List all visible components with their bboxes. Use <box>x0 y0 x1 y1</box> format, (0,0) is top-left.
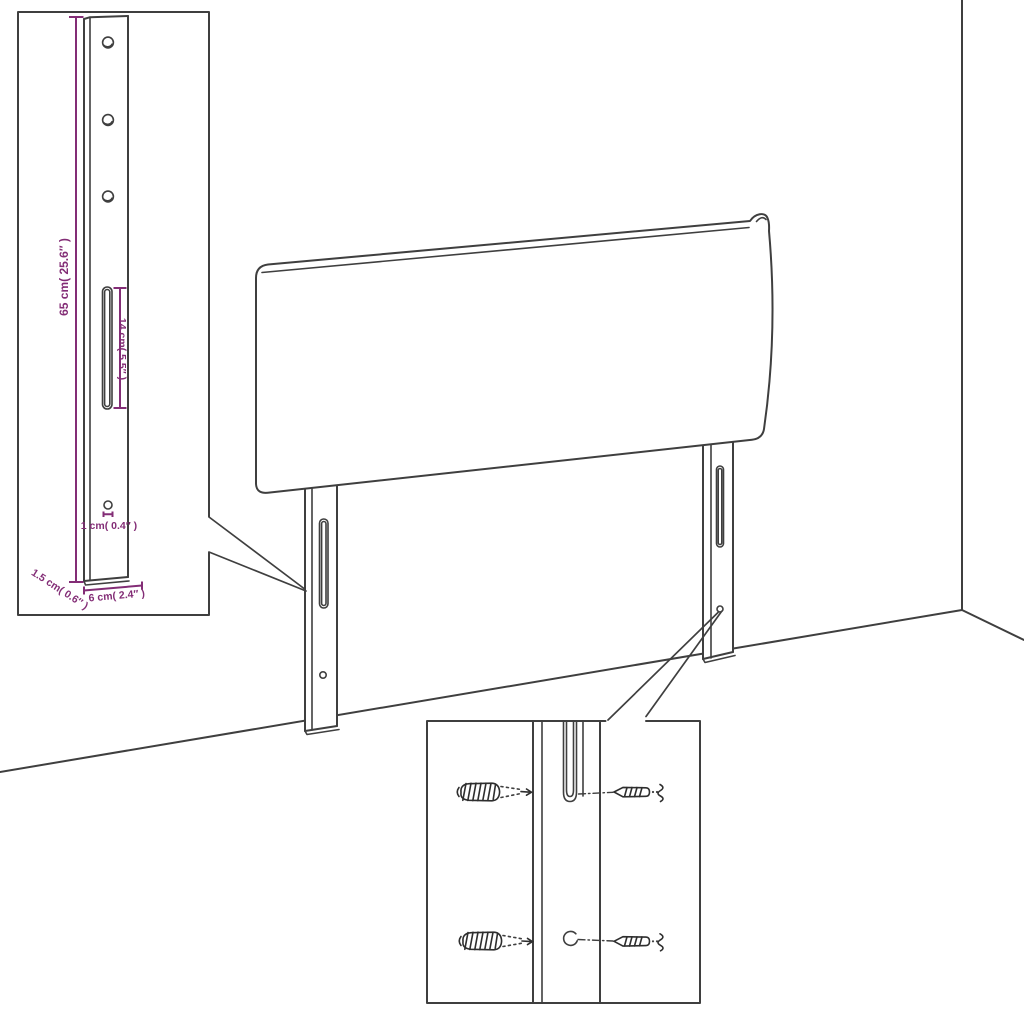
inset2-hole <box>564 931 578 945</box>
screw-top <box>579 785 664 802</box>
leader-line-b <box>646 612 722 717</box>
headboard-panel <box>256 214 773 493</box>
wall-plug-top-flange <box>457 788 459 797</box>
wall-plug-bottom-projection-dots <box>503 936 522 947</box>
leader-lines-leg-detail <box>209 517 306 591</box>
wall-plug-top-arrow <box>521 789 532 795</box>
screw-bottom-threads <box>625 937 643 946</box>
wall-plug-top-threads <box>463 783 496 800</box>
wall-plug-bottom-threads <box>465 932 498 949</box>
screw-bottom-head-squiggle <box>658 934 663 951</box>
wall-plug-bottom-flange <box>459 937 461 946</box>
hole-diameter-dimension-label: 1 cm( 0.4″ ) <box>81 520 137 532</box>
screw-bottom-centerline <box>578 940 613 942</box>
diagram-canvas: 65 cm( 25.6″ ) 14 cm( 5.5″ ) 1 cm( 0.4″ … <box>0 0 1024 1024</box>
leg-detail-inset: 65 cm( 25.6″ ) 14 cm( 5.5″ ) 1 cm( 0.4″ … <box>18 12 209 615</box>
leader-line-upper <box>209 517 304 589</box>
left-leg <box>305 474 339 735</box>
floor-line-right <box>962 610 1024 640</box>
wall-plug-bottom-arrow <box>522 938 533 944</box>
wall-plug-top-projection-dots <box>501 787 521 798</box>
right-leg <box>703 429 735 663</box>
wall-plug-bottom <box>459 932 532 950</box>
screw-bottom <box>578 934 663 951</box>
leader-line-lower <box>209 552 306 591</box>
screw-bottom-dot-1 <box>652 940 654 942</box>
mounting-detail-inset <box>427 721 700 1003</box>
inset2-slot-inner <box>567 721 574 797</box>
screw-top-dot-1 <box>652 791 654 793</box>
inset2-leg-strip <box>533 721 600 1003</box>
screw-top-head-squiggle <box>658 785 663 802</box>
floor-line-left <box>0 610 962 772</box>
headboard-assembly-diagram: 65 cm( 25.6″ ) 14 cm( 5.5″ ) 1 cm( 0.4″ … <box>0 0 1024 1024</box>
inset-leg-foot <box>84 581 129 585</box>
screw-top-threads <box>625 788 643 797</box>
panel-outline <box>256 214 773 493</box>
inset2-slot <box>564 721 577 802</box>
thickness-dimension-label: 1.5 cm( 0.6″ ) <box>29 567 90 613</box>
height-dimension-label: 65 cm( 25.6″ ) <box>57 238 71 316</box>
wall-plug-top <box>457 783 531 801</box>
slot-length-dimension-label: 14 cm( 5.5″ ) <box>116 318 128 380</box>
